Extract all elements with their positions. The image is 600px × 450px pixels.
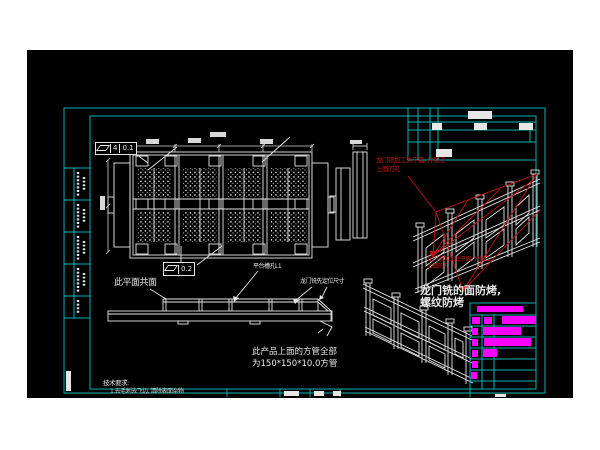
flatness-symbol-icon xyxy=(164,265,178,271)
tech-requirements-title: 技术要求: xyxy=(103,380,129,387)
flatness-control-frame-top: 4 0.1 xyxy=(95,142,137,155)
bom-highlighted-entries xyxy=(471,306,536,379)
title-block-text-blobs xyxy=(432,111,533,157)
flatness-symbol-icon xyxy=(96,145,110,151)
iso-view-top xyxy=(413,170,540,293)
flatness-control-frame-mid: 0.2 xyxy=(163,262,195,276)
section-dim-text-blob xyxy=(350,140,362,144)
platform-slot-note: 平台槽孔L1 xyxy=(253,264,281,270)
section-view xyxy=(330,143,367,240)
tech-requirements-item: 1.去毛刺去飞边, 清除表面杂物 xyxy=(110,389,184,395)
left-strip-highlight xyxy=(66,371,71,391)
red-machining-note-top-line2: 上面的孔 xyxy=(376,166,400,173)
milled-face-note-line1: 龙门铣的面防烤, xyxy=(420,285,501,296)
red-machining-note-top-line1: 龙门铣加工此平面, 并加工 xyxy=(376,157,445,164)
flatness-value: 0.2 xyxy=(178,265,194,274)
cad-viewport: 4 0.1 0.2 此平面共面 平台槽孔L1 龙门铣先定位尺寸 龙门铣加工此平面… xyxy=(27,50,573,398)
bottom-strip-text-blobs xyxy=(284,391,506,397)
cad-linework xyxy=(27,50,573,398)
plan-view-grating-hatch xyxy=(137,168,307,242)
square-tube-note-line2: 为150*150*10.0方管 xyxy=(252,360,337,369)
gantry-locate-note: 龙门铣先定位尺寸 xyxy=(300,279,344,285)
square-tube-note-line1: 此产品上面的方管全部 xyxy=(252,348,337,357)
red-machining-note-bottom-line2: 上面的孔 xyxy=(427,264,449,270)
coplanar-note: 此平面共面 xyxy=(114,279,157,288)
plan-view xyxy=(108,137,334,265)
flatness-datum: 4 xyxy=(110,144,119,153)
milled-face-note-line2: 螺纹防烤 xyxy=(420,297,464,308)
left-revision-strip xyxy=(78,172,84,314)
page-background: 4 0.1 0.2 此平面共面 平台槽孔L1 龙门铣先定位尺寸 龙门铣加工此平面… xyxy=(0,0,600,450)
flatness-value: 0.1 xyxy=(119,144,135,153)
elevation-leader-arrows xyxy=(233,295,324,304)
